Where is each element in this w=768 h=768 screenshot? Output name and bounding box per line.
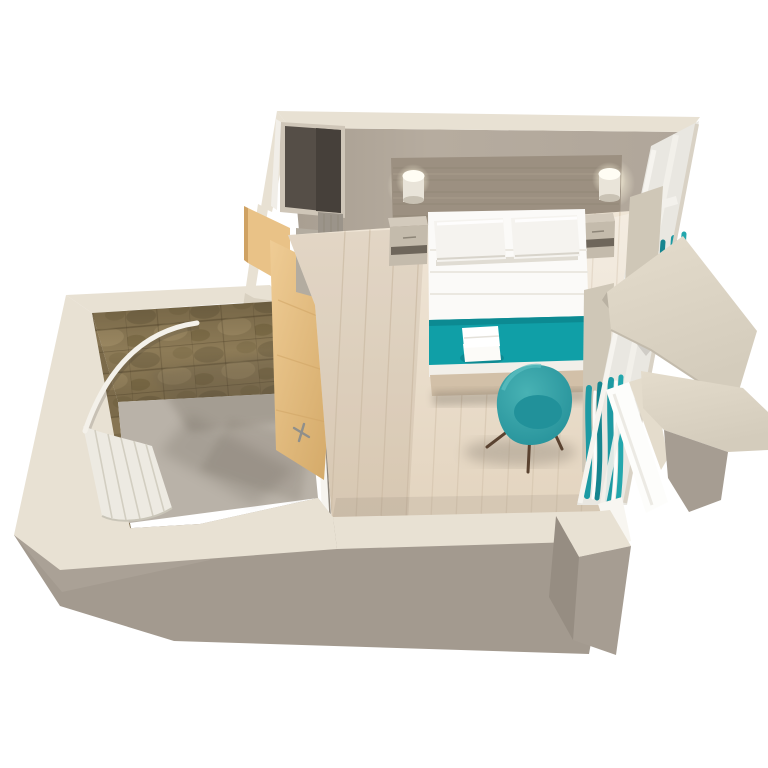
lamp-bottom <box>403 196 424 204</box>
open-closet-niche <box>271 119 345 218</box>
entrance-door-edge <box>244 206 248 263</box>
lamp-top <box>599 168 621 180</box>
bathroom <box>14 204 338 540</box>
nightstand-left <box>388 216 428 266</box>
floorplan-svg <box>0 0 768 768</box>
chair-seat <box>514 395 562 429</box>
lamp-bottom <box>599 194 620 202</box>
nightstand-handle <box>592 231 604 232</box>
closet-interior-side <box>316 128 341 213</box>
lamp-top <box>403 170 425 182</box>
nightstand-handle <box>403 237 416 238</box>
folded-towels <box>460 326 504 365</box>
pillar-front <box>573 546 631 655</box>
floorplan-render <box>0 0 768 768</box>
